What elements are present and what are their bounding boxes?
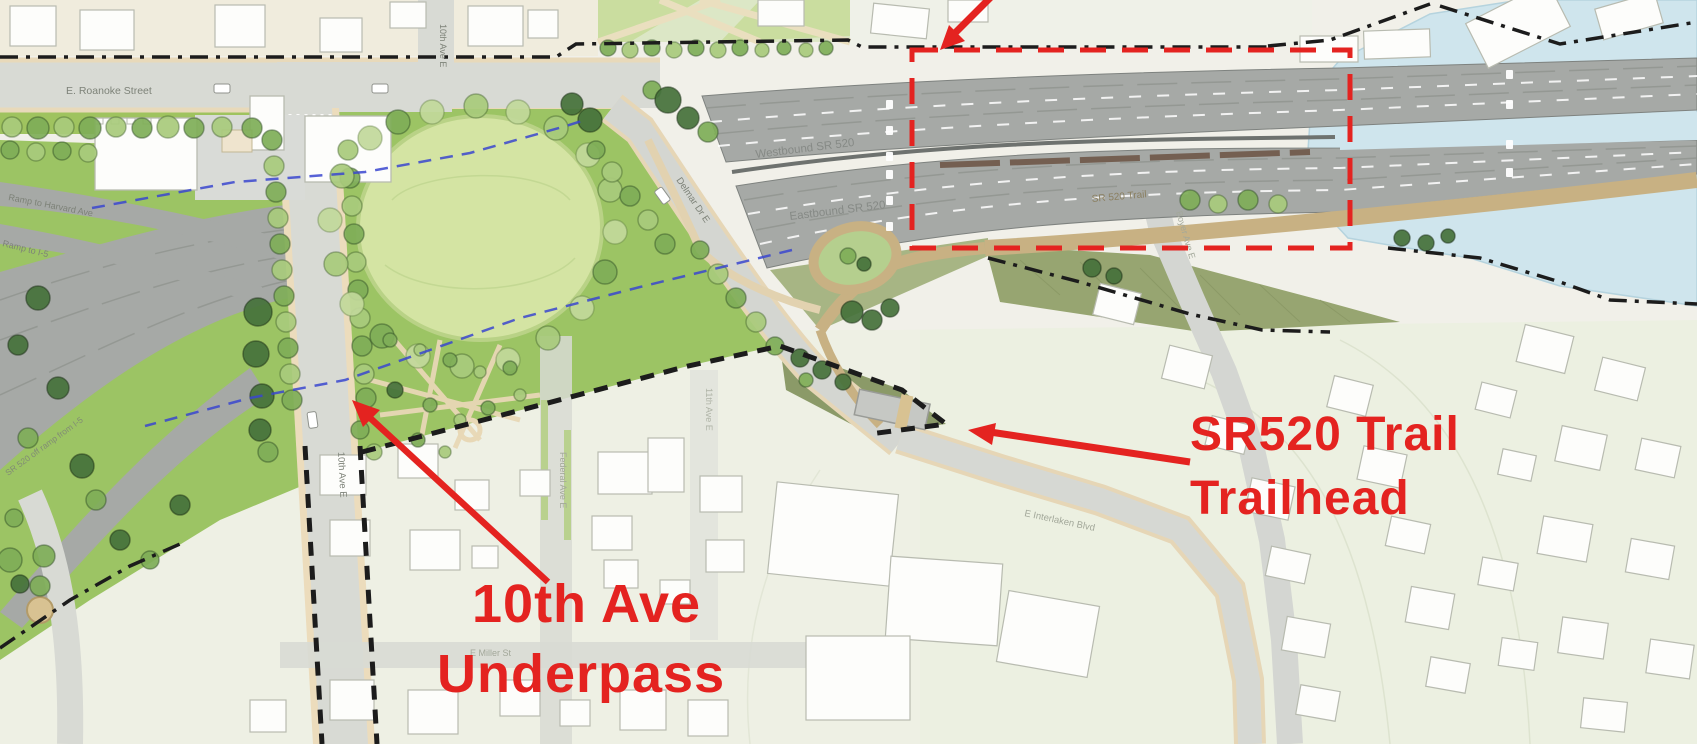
bridge-joint-marker (886, 100, 893, 109)
tree-icon (264, 156, 284, 176)
street-label-roanoke: E. Roanoke Street (66, 85, 152, 97)
tree-icon (330, 164, 354, 188)
tree-icon (272, 260, 292, 280)
tree-icon (1180, 190, 1200, 210)
tree-icon (698, 122, 718, 142)
bridge-joint-marker (1506, 100, 1513, 109)
building-footprint (528, 10, 558, 38)
building-footprint (1537, 516, 1593, 562)
building-footprint (996, 591, 1099, 678)
tree-icon (386, 110, 410, 134)
tree-icon (170, 495, 190, 515)
tree-icon (514, 389, 526, 401)
tree-icon (857, 257, 871, 271)
tree-icon (1209, 195, 1227, 213)
bridge-joint-marker (886, 152, 893, 161)
building-footprint (1646, 639, 1694, 679)
tree-icon (603, 220, 627, 244)
building-footprint (250, 700, 286, 732)
tree-icon (86, 490, 106, 510)
building-footprint (1405, 586, 1455, 629)
building-footprint (1498, 638, 1538, 671)
tree-icon (8, 335, 28, 355)
tree-icon (622, 42, 638, 58)
tree-icon (1238, 190, 1258, 210)
site-plan-map: Ramp to Harvard Ave Ramp to I-5 SR 520 o… (0, 0, 1697, 744)
tree-icon (602, 162, 622, 182)
tree-icon (270, 234, 290, 254)
tree-icon (819, 41, 833, 55)
building-footprint (80, 10, 134, 50)
bridge-joint-marker (1506, 140, 1513, 149)
tree-icon (578, 108, 602, 132)
tree-icon (54, 117, 74, 137)
building-footprint (1426, 657, 1471, 693)
bridge-joint-marker (1506, 168, 1513, 177)
tree-icon (26, 286, 50, 310)
tree-icon (212, 117, 232, 137)
tree-icon (655, 234, 675, 254)
tree-icon (324, 252, 348, 276)
tree-icon (620, 186, 640, 206)
building-footprint (10, 6, 56, 46)
building-footprint (871, 3, 930, 39)
bridge-joint-marker (886, 170, 893, 179)
tree-icon (1394, 230, 1410, 246)
building-footprint (455, 480, 489, 510)
tree-icon (276, 312, 296, 332)
tree-icon (358, 126, 382, 150)
building-footprint (215, 5, 265, 47)
bridge-joint-marker (886, 126, 893, 135)
tree-icon (593, 260, 617, 284)
tree-icon (266, 182, 286, 202)
tree-icon (338, 140, 358, 160)
building-footprint (330, 680, 374, 720)
tree-icon (18, 428, 38, 448)
building-footprint (468, 6, 523, 46)
annotation-trailhead-line2: Trailhead (1190, 472, 1410, 525)
building-footprint (1478, 557, 1518, 591)
tree-icon (840, 248, 856, 264)
building-footprint (410, 530, 460, 570)
building-footprint (688, 700, 728, 736)
tree-icon (777, 41, 791, 55)
roanoke-park (598, 0, 850, 42)
tree-icon (443, 353, 457, 367)
annotation-trailhead-line1: SR520 Trail (1190, 408, 1460, 461)
tree-icon (755, 43, 769, 57)
tree-icon (835, 374, 851, 390)
tree-icon (11, 575, 29, 593)
tree-icon (1106, 268, 1122, 284)
street-label-eleventh: 11th Ave E (704, 388, 714, 431)
tree-icon (342, 196, 362, 216)
tree-icon (0, 548, 22, 572)
building-footprint (592, 516, 632, 550)
tree-icon (352, 336, 372, 356)
tree-icon (33, 545, 55, 567)
building-footprint (700, 476, 742, 512)
tree-icon (274, 286, 294, 306)
tree-icon (387, 382, 403, 398)
tree-icon (383, 333, 397, 347)
tree-icon (282, 390, 302, 410)
building-footprint (1581, 698, 1628, 732)
bridge-joint-marker (1506, 70, 1513, 79)
tree-icon (110, 530, 130, 550)
building-footprint (1625, 538, 1674, 579)
tree-icon (1, 141, 19, 159)
building-footprint (768, 482, 899, 586)
building-footprint (648, 438, 684, 492)
tree-icon (536, 326, 560, 350)
building-footprint (390, 2, 426, 28)
tree-icon (691, 241, 709, 259)
tree-icon (841, 301, 863, 323)
annotation-underpass-line1: 10th Ave (472, 574, 701, 634)
tree-icon (666, 42, 682, 58)
tree-icon (79, 144, 97, 162)
building-footprint (885, 556, 1002, 646)
tree-icon (30, 576, 50, 596)
tree-icon (27, 143, 45, 161)
bridge-joint-marker (886, 222, 893, 231)
tree-icon (464, 94, 488, 118)
tree-icon (344, 224, 364, 244)
tree-icon (503, 361, 517, 375)
tree-icon (5, 509, 23, 527)
tree-icon (70, 454, 94, 478)
building-footprint (520, 470, 550, 496)
building-footprint (472, 546, 498, 568)
tree-icon (1441, 229, 1455, 243)
tree-icon (799, 43, 813, 57)
tree-icon (2, 117, 22, 137)
building-footprint (320, 18, 362, 52)
building-footprint (1364, 29, 1431, 59)
tree-icon (506, 100, 530, 124)
tree-icon (157, 116, 179, 138)
tree-icon (1083, 259, 1101, 277)
tree-icon (258, 442, 278, 462)
tree-icon (587, 141, 605, 159)
building-footprint (758, 0, 804, 26)
tree-icon (862, 310, 882, 330)
tree-icon (244, 298, 272, 326)
tree-icon (420, 100, 444, 124)
tree-icon (340, 292, 364, 316)
tree-icon (474, 366, 486, 378)
tree-icon (242, 118, 262, 138)
tree-icon (280, 364, 300, 384)
federal-planting-strip (541, 400, 548, 520)
tree-icon (1418, 235, 1434, 251)
building-footprint (1281, 616, 1330, 657)
building-footprint (706, 540, 744, 572)
tree-icon (439, 446, 451, 458)
building-footprint (806, 636, 910, 720)
lawn-oval (358, 116, 602, 340)
tree-icon (243, 341, 269, 367)
tree-icon (746, 312, 766, 332)
tree-icon (262, 130, 282, 150)
tree-icon (249, 419, 271, 441)
tree-icon (132, 118, 152, 138)
tree-icon (638, 210, 658, 230)
street-label-federal: Federal Ave E (558, 452, 568, 508)
tree-icon (710, 42, 726, 58)
tree-icon (47, 377, 69, 399)
tree-icon (726, 288, 746, 308)
building-footprint (598, 452, 652, 494)
tree-icon (184, 118, 204, 138)
bridge-joint-marker (886, 196, 893, 205)
tree-icon (318, 208, 342, 232)
tree-icon (655, 87, 681, 113)
tree-icon (79, 117, 101, 139)
tree-icon (561, 93, 583, 115)
tree-icon (268, 208, 288, 228)
tree-icon (106, 117, 126, 137)
tree-icon (423, 398, 437, 412)
building-footprint (1296, 685, 1341, 721)
annotation-underpass-line2: Underpass (437, 644, 725, 704)
tree-icon (27, 117, 49, 139)
tree-icon (677, 107, 699, 129)
tree-icon (481, 401, 495, 415)
tree-icon (53, 142, 71, 160)
tree-icon (881, 299, 899, 317)
site-plan-screenshot: Ramp to Harvard Ave Ramp to I-5 SR 520 o… (0, 0, 1697, 744)
tree-icon (799, 373, 813, 387)
tree-icon (346, 252, 366, 272)
building-footprint (1558, 617, 1609, 659)
tree-icon (278, 338, 298, 358)
tree-icon (1269, 195, 1287, 213)
street-label-tenth-north: 10th Ave E (438, 24, 448, 67)
